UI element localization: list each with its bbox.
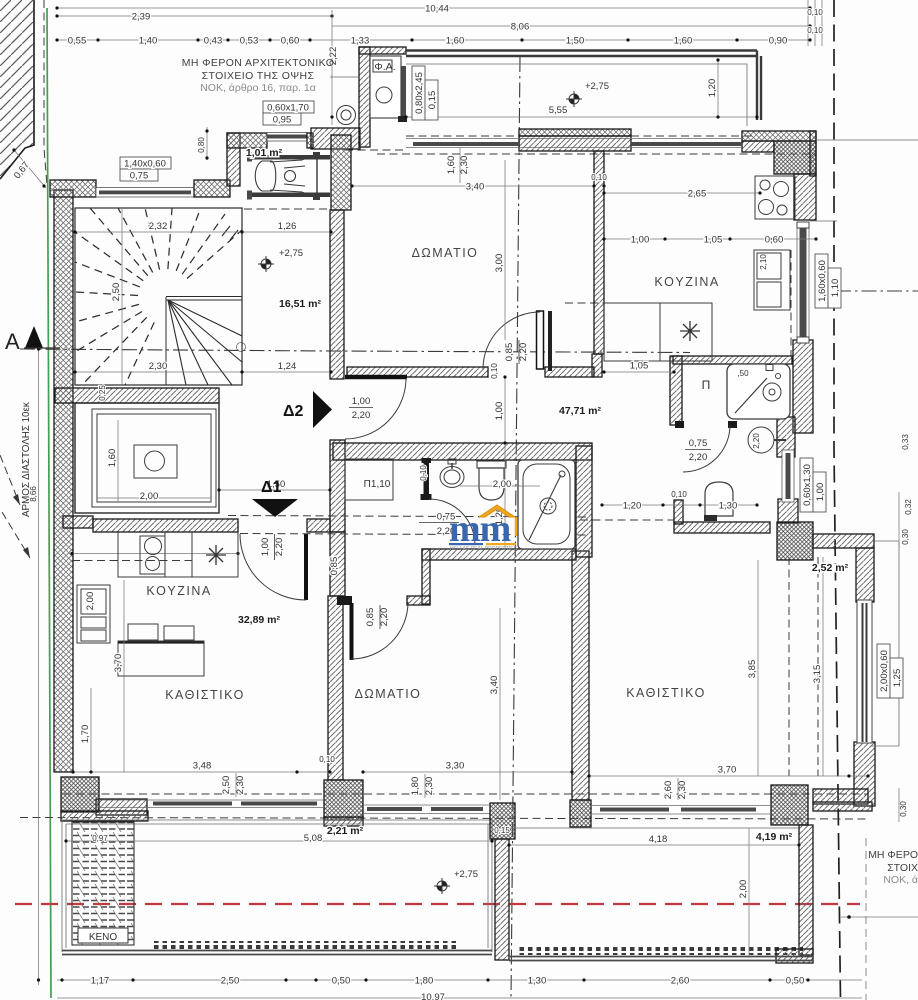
svg-text:0,60x1,70: 0,60x1,70 [267,103,309,114]
svg-text:0,10: 0,10 [591,173,607,182]
svg-text:A: A [5,329,20,354]
svg-text:2,30: 2,30 [149,361,168,372]
svg-text:2,50: 2,50 [221,776,232,795]
svg-text:0,30: 0,30 [901,529,910,545]
svg-text:1,00: 1,00 [631,235,650,246]
svg-text:1,00: 1,00 [260,538,271,557]
svg-text:5,08: 5,08 [304,833,323,844]
svg-text:0,15: 0,15 [494,826,510,835]
svg-text:1,40x0,60: 1,40x0,60 [124,159,166,170]
svg-text:KOYZINA: KOYZINA [654,275,719,289]
svg-text:2,30: 2,30 [677,781,688,800]
svg-text:1,01 m²: 1,01 m² [246,147,283,159]
svg-text:1,60x0,60: 1,60x0,60 [817,260,828,302]
svg-text:4,18: 4,18 [649,834,668,845]
svg-text:2,65: 2,65 [688,189,707,200]
svg-text:2,60: 2,60 [663,781,674,800]
svg-text:0,85: 0,85 [365,608,376,627]
svg-text:3,00: 3,00 [494,254,505,273]
svg-text:Δ1: Δ1 [261,479,282,496]
svg-text:0,60: 0,60 [281,36,300,47]
svg-text:2,00: 2,00 [738,880,749,899]
svg-text:0,60: 0,60 [765,235,784,246]
svg-text:1,70: 1,70 [80,725,91,744]
svg-text:2,50: 2,50 [221,976,240,987]
svg-text:KENO: KENO [89,932,118,943]
svg-text:0,10: 0,10 [419,465,428,481]
svg-text:2,21 m²: 2,21 m² [327,825,364,837]
svg-text:8,06: 8,06 [511,22,530,33]
svg-text:+2,75: +2,75 [279,248,303,259]
svg-text:Φ.Α.: Φ.Α. [374,61,395,73]
svg-text:1,10: 1,10 [830,279,841,298]
svg-text:47,71 m²: 47,71 m² [559,405,602,417]
svg-text:1,00: 1,00 [352,396,371,407]
svg-text:1,40: 1,40 [139,36,158,47]
svg-text:1,24: 1,24 [278,361,297,372]
svg-text:1,60: 1,60 [674,36,693,47]
svg-text:ΜΗ ΦΕΡΟ: ΜΗ ΦΕΡΟ [868,849,918,861]
svg-text:1,60: 1,60 [446,36,465,47]
svg-text:0,10: 0,10 [807,8,823,17]
svg-text:2,60: 2,60 [671,976,690,987]
svg-text:2,20: 2,20 [752,433,761,449]
svg-text:5,55: 5,55 [549,105,568,116]
svg-text:1,50: 1,50 [566,36,585,47]
svg-text:0,75: 0,75 [689,438,708,449]
svg-text:ΚΑΘΙΣΤΙΚΟ: ΚΑΘΙΣΤΙΚΟ [626,686,706,700]
svg-text:+2,75: +2,75 [454,869,478,880]
svg-text:Δ2: Δ2 [283,403,304,420]
svg-text:0,10: 0,10 [490,363,499,379]
svg-text:1,05: 1,05 [704,235,723,246]
svg-text:0,85: 0,85 [504,343,515,362]
svg-text:0,95: 0,95 [273,115,292,126]
svg-text:2,52 m²: 2,52 m² [812,562,849,574]
svg-text:0,32: 0,32 [904,499,913,515]
svg-text:1,17: 1,17 [91,976,110,987]
svg-text:2,00: 2,00 [85,592,96,611]
svg-text:1,80: 1,80 [410,777,421,796]
svg-text:,50: ,50 [737,369,749,378]
svg-text:0,50: 0,50 [786,976,805,987]
svg-text:0,10: 0,10 [807,26,823,35]
svg-text:KOYZINA: KOYZINA [146,584,211,598]
svg-text:2,20: 2,20 [518,343,529,362]
svg-text:3,30: 3,30 [446,761,465,772]
svg-text:ΣΤΟΙΧΕΙΟ ΤΗΣ ΟΨΗΣ: ΣΤΟΙΧΕΙΟ ΤΗΣ ΟΨΗΣ [202,70,315,82]
svg-text:2,30: 2,30 [459,156,470,175]
svg-text:2,30: 2,30 [235,776,246,795]
svg-text:1,33: 1,33 [351,36,370,47]
svg-text:Π: Π [702,378,711,392]
svg-text:2,00x0,60: 2,00x0,60 [879,650,890,692]
svg-text:2,00: 2,00 [140,491,159,502]
svg-text:ΚΑΘΙΣΤΙΚΟ: ΚΑΘΙΣΤΙΚΟ [165,688,245,702]
svg-text:0,60x1,30: 0,60x1,30 [802,464,813,506]
svg-text:0,33: 0,33 [901,434,910,450]
svg-text:2,30: 2,30 [424,777,435,796]
svg-text:0,75: 0,75 [130,171,149,182]
svg-text:1,60: 1,60 [107,449,118,468]
svg-text:0,10: 0,10 [319,755,335,764]
svg-text:2,20: 2,20 [379,608,390,627]
svg-text:0,97: 0,97 [92,834,108,843]
svg-text:10,44: 10,44 [425,4,449,15]
svg-text:0,15: 0,15 [427,91,438,110]
svg-text:1,26: 1,26 [278,221,297,232]
svg-text:3,40: 3,40 [466,182,485,193]
svg-text:+2,75: +2,75 [585,81,609,92]
svg-text:1,60: 1,60 [446,156,457,175]
svg-text:1,00: 1,00 [815,483,826,502]
svg-text:ΔΩΜΑΤΙΟ: ΔΩΜΑΤΙΟ [412,246,479,260]
svg-text:0,43: 0,43 [204,36,223,47]
svg-text:2,32: 2,32 [149,221,168,232]
svg-text:3,85: 3,85 [747,660,758,679]
svg-text:3,40: 3,40 [489,676,500,695]
svg-text:1,25: 1,25 [892,669,903,688]
svg-text:0,85: 0,85 [329,557,340,576]
svg-text:2,50: 2,50 [111,283,122,302]
svg-text:2,00: 2,00 [493,479,512,490]
svg-text:3,48: 3,48 [193,761,212,772]
svg-text:0,80: 0,80 [197,137,206,153]
svg-text:0,25: 0,25 [98,385,107,401]
svg-text:ΜΗ ΦΕΡΟΝ ΑΡΧΙΤΕΚΤΟΝΙΚΟ: ΜΗ ΦΕΡΟΝ ΑΡΧΙΤΕΚΤΟΝΙΚΟ [182,57,335,69]
svg-text:ΝΟΚ, ά: ΝΟΚ, ά [883,874,918,886]
svg-text:2,10: 2,10 [759,254,768,270]
svg-text:0,90: 0,90 [769,36,788,47]
svg-text:1,20: 1,20 [623,501,642,512]
svg-text:ΝΟΚ, άρθρο 16, παρ. 1α: ΝΟΚ, άρθρο 16, παρ. 1α [200,82,316,94]
svg-text:10,97: 10,97 [421,992,445,1000]
svg-text:2,39: 2,39 [132,12,151,23]
svg-text:0,50: 0,50 [332,976,351,987]
svg-text:2,20: 2,20 [352,410,371,421]
svg-text:ΔΩΜΑΤΙΟ: ΔΩΜΑΤΙΟ [355,687,422,701]
svg-text:0,10: 0,10 [671,490,687,499]
svg-text:HELLAS REAL PROPERTIES: HELLAS REAL PROPERTIES [450,546,518,552]
svg-text:1,30: 1,30 [719,501,738,512]
svg-text:32,89 m²: 32,89 m² [238,614,281,626]
svg-text:Π1,10: Π1,10 [364,479,391,490]
svg-text:0,55: 0,55 [68,36,87,47]
svg-text:3,70: 3,70 [718,765,737,776]
svg-text:3,70: 3,70 [113,654,124,673]
svg-text:0,30: 0,30 [899,801,908,817]
svg-text:1,05: 1,05 [630,361,649,372]
svg-text:1,80: 1,80 [415,976,434,987]
svg-text:0,80x2,45: 0,80x2,45 [414,72,425,114]
svg-text:16,51 m²: 16,51 m² [279,298,322,310]
svg-text:1,00: 1,00 [494,402,505,421]
svg-text:1,20: 1,20 [707,79,718,98]
svg-text:3,15: 3,15 [812,665,823,684]
svg-text:0,53: 0,53 [240,36,259,47]
svg-text:4,19 m²: 4,19 m² [756,831,793,843]
svg-text:2,20: 2,20 [274,538,285,557]
svg-text:ΣΤΟΙΧ: ΣΤΟΙΧ [887,862,918,874]
svg-text:1,30: 1,30 [528,976,547,987]
svg-text:ΑΡΜΟΣ ΔΙΑΣΤΟΛΗΣ 10εκ: ΑΡΜΟΣ ΔΙΑΣΤΟΛΗΣ 10εκ [21,402,32,517]
svg-text:2,20: 2,20 [689,452,708,463]
